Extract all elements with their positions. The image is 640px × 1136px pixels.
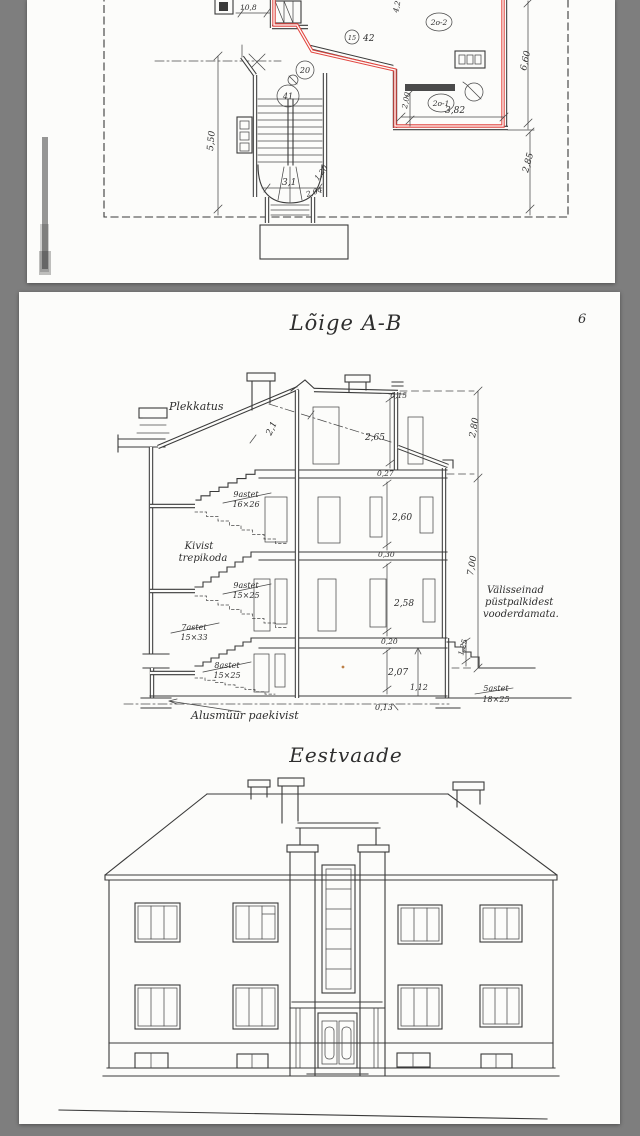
- dim-slab1: 0,27: [377, 469, 394, 478]
- entrance-porch: [260, 197, 348, 259]
- dim-diag-a: 1,20: [312, 163, 330, 182]
- dim-attic: 2,65: [364, 433, 385, 443]
- dim-steps: 1,25: [456, 638, 469, 657]
- dim-right-upper: 6,60: [519, 50, 533, 72]
- wall-note-3: vooderdamata.: [483, 609, 559, 620]
- dimension-lines: [214, 0, 534, 215]
- dim-floor2: 2,60: [391, 513, 412, 523]
- wall-note-2: püstpalkidest: [485, 597, 554, 608]
- hatched-wall: [405, 84, 455, 91]
- basement-windows: [135, 1053, 512, 1068]
- page-1-floor-plan[interactable]: 10,8 4,2 6,60 5,50 2,00 3,82 2,85 3,1 1,…: [27, 0, 615, 283]
- scan-artifact: [39, 137, 51, 275]
- stair-f5-size: 18×25: [482, 695, 509, 704]
- dim-slab3: 0,20: [381, 637, 398, 646]
- room-20-1: 2o-1: [432, 99, 450, 108]
- elevation-title: Eestvaade: [288, 743, 403, 767]
- stair-f2-count: 9astet: [233, 581, 259, 590]
- dim-top-width: 10,8: [240, 3, 257, 12]
- room-20-2: 2o-2: [430, 18, 448, 27]
- dim-basement: 2,07: [387, 668, 408, 678]
- entrance-bay: [287, 823, 389, 1076]
- stairwell-label-2: trepikoda: [179, 553, 228, 564]
- stair-f3-size: 15×33: [180, 633, 207, 642]
- dim-total: 7,00: [466, 555, 479, 577]
- section-elevation-drawing: Lõige A-B 6: [19, 292, 620, 1124]
- damper-symbol: [463, 82, 483, 101]
- dim-roof-slope: 2,1: [264, 420, 280, 438]
- stair-f4-count: 8astet: [214, 661, 240, 670]
- stair-f1-count: 9astet: [233, 490, 259, 499]
- wall-note-1: Välisseinad: [487, 585, 544, 596]
- foundation-note: Alusmüür paekivist: [190, 709, 299, 722]
- flue-symbol: [215, 0, 233, 14]
- section-drawing: Plekkatus 0,15 2,65 2,80 2,1 9astet 16×2…: [118, 373, 571, 722]
- room-42: 42: [362, 34, 375, 44]
- stair-f2-size: 15×25: [232, 591, 259, 600]
- stairwell-label-1: Kivist: [184, 541, 215, 552]
- stair-f1-size: 16×26: [232, 500, 259, 509]
- roof-label: Plekkatus: [168, 400, 224, 413]
- stair-f5-count: 5astet: [483, 684, 509, 693]
- page-2-section-elevation[interactable]: Lõige A-B 6: [19, 292, 620, 1124]
- apartment-walls: [310, 0, 508, 130]
- dim-upper: 2,80: [468, 417, 482, 440]
- page-number: 6: [578, 312, 586, 327]
- dim-plinth: 1,12: [410, 683, 428, 692]
- eaves-dashed-outline: [104, 0, 568, 217]
- room-20: 20: [299, 66, 310, 75]
- dim-stair-width: 3,1: [282, 178, 296, 188]
- radiator-symbol-right: [455, 51, 485, 68]
- radiator-symbol-left: [237, 117, 252, 153]
- dim-slab2: 0,30: [378, 550, 395, 559]
- section-openings: [254, 407, 435, 692]
- door-mark-15: 15: [348, 34, 356, 42]
- floor-plan-drawing: 10,8 4,2 6,60 5,50 2,00 3,82 2,85 3,1 1,…: [27, 0, 615, 283]
- stair-f3-count: 7astet: [181, 623, 207, 632]
- section-title: Lõige A-B: [289, 311, 403, 335]
- dim-slab4: 0,13: [375, 703, 393, 712]
- room-41: 41: [282, 92, 293, 101]
- document-viewer[interactable]: { "colors": {"background":"#7e7e7e","pag…: [0, 0, 640, 1136]
- red-apartment-outline: [274, 0, 503, 126]
- elevation-drawing: [59, 778, 559, 1119]
- dim-floor1: 2,58: [393, 599, 414, 609]
- dim-right-lower: 2,85: [521, 152, 536, 175]
- scan-speck: [342, 666, 345, 669]
- dim-red-width: 4,2: [391, 0, 403, 14]
- dim-parapet: 0,15: [390, 391, 407, 400]
- dim-left-height: 5,50: [206, 130, 218, 151]
- stair-f4-size: 15×25: [213, 671, 240, 680]
- lower-windows: [135, 985, 522, 1029]
